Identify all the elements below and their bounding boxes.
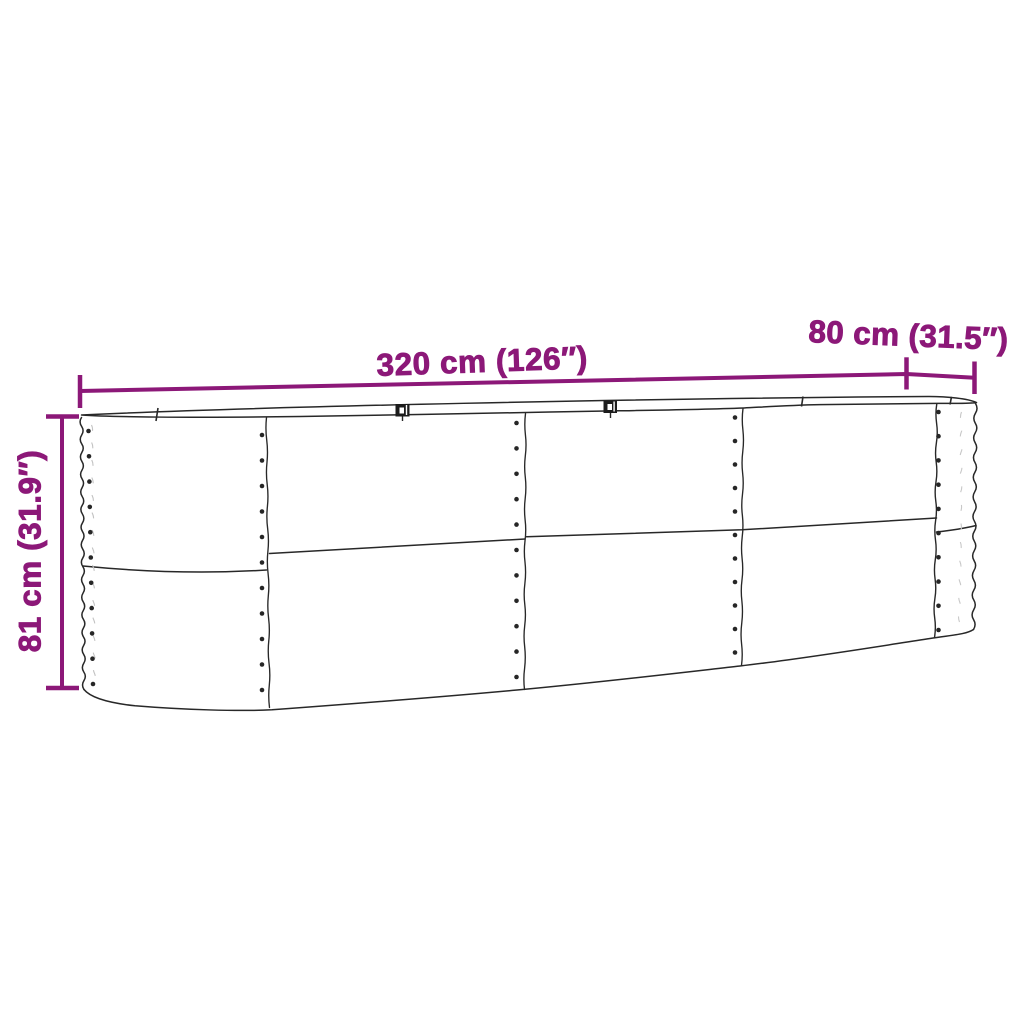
svg-text:81 cm (31.9″): 81 cm (31.9″) bbox=[12, 450, 48, 653]
